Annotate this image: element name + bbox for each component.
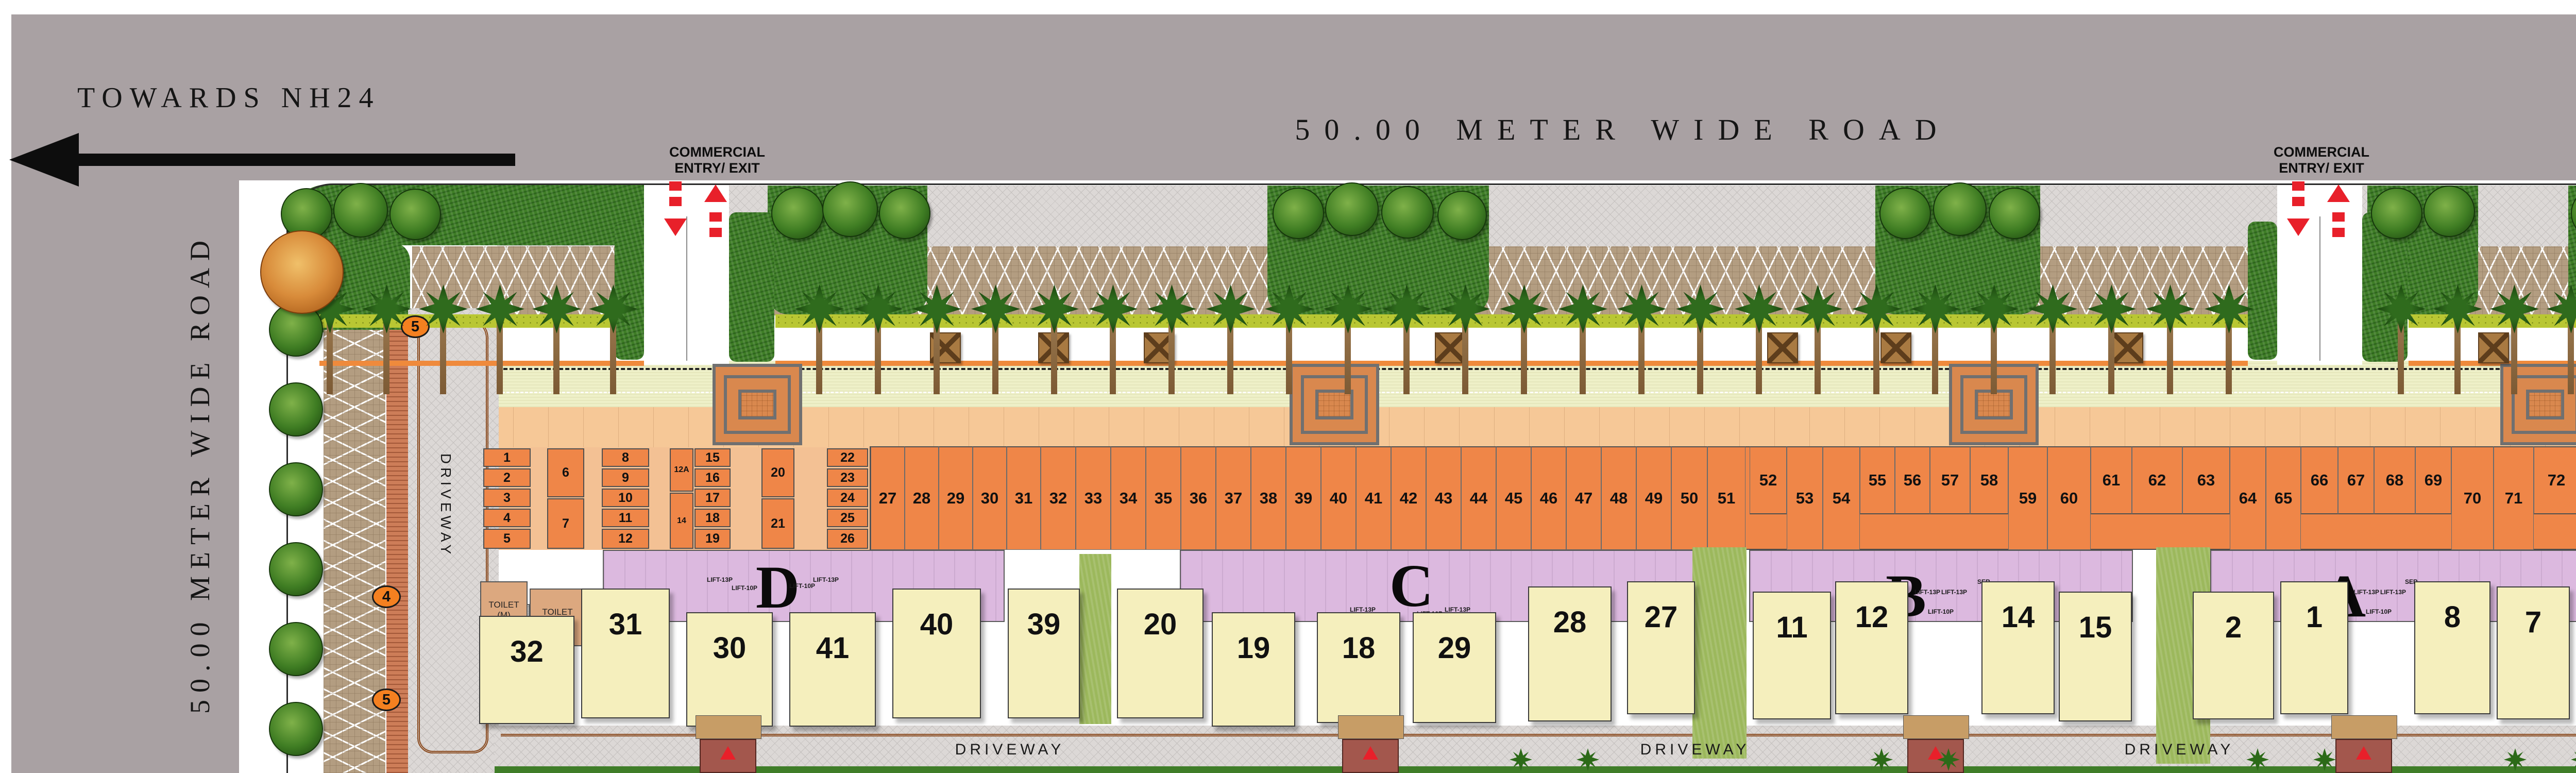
shop-unit: 30 [973,446,1007,550]
lift-label: LIFT-13P [2380,589,2406,596]
driveway-label: DRIVEWAY [2112,741,2246,759]
lift-label: LIFT-10P [1928,608,1954,615]
shop-unit: 55 [1860,446,1895,514]
commercial-entry-line2: ENTRY/ EXIT [650,160,784,176]
shop-unit: 16 [694,468,731,487]
tree-icon [269,622,323,676]
lift-label: LIFT-13P [1941,589,1967,596]
shop-unit: 58 [1970,446,2008,514]
residential-block: 7 [2497,586,2570,719]
palm-tree-icon [2568,309,2574,394]
shop-unit: 3 [483,489,531,507]
residential-block: 32 [479,616,574,724]
nh24-arrow-icon [9,133,79,187]
commercial-entry-label: COMMERCIAL ENTRY/ EXIT [650,144,784,176]
shop-unit: 47 [1566,446,1601,550]
entrance-gate [1342,739,1399,773]
palm-tree-icon [1638,309,1645,394]
shop-unit: 45 [1496,446,1531,550]
shop-unit: 40 [1321,446,1356,550]
shop-unit: 43 [1426,446,1461,550]
zone-number-badge: 5 [372,688,401,711]
residential-block: 19 [1212,612,1295,727]
paved-courtyard-square [1290,364,1379,445]
shop-unit: 6 [547,448,584,497]
shop-unit: 21 [761,498,794,549]
entrance-gate [1907,739,1964,773]
tree-icon [269,462,323,516]
shop-unit: 18 [694,509,731,527]
shop-unit: 53 [1787,446,1823,550]
tree-icon [1437,191,1487,240]
shop-unit: 8 [602,448,649,467]
tree-icon [269,542,323,596]
palm-tree-icon [2398,309,2404,394]
shop-unit: 67 [2338,446,2374,514]
shop-unit: 2 [483,468,531,487]
tree-icon [1879,188,1931,239]
tower-label: C [1387,552,1436,619]
residential-block: 39 [1008,589,1080,718]
shop-unit: 56 [1895,446,1930,514]
palm-tree-icon [1168,309,1175,394]
palm-tree-icon [1756,309,1762,394]
entry-direction-arrow-icon [709,181,722,239]
shop-unit: 46 [1531,446,1566,550]
residential-block: 28 [1528,586,1612,721]
shop-unit: 9 [602,468,649,487]
top-road-label: 50.00 METER WIDE ROAD [1236,112,2009,147]
site-plan-canvas: TOWARDS NH24 50.00 METER WIDE ROAD 50.00… [0,0,2576,773]
residential-block: 1 [2280,581,2348,714]
palm-tree-icon [1697,309,1703,394]
tree-icon [269,702,323,756]
palm-tree-icon [327,309,333,394]
palm-tree-icon [1932,309,1938,394]
palm-tree-icon [1403,309,1410,394]
shop-unit: 36 [1181,446,1216,550]
lift-label: LIFT-13P [2353,589,2379,596]
tree-icon [1381,186,1434,239]
tree-icon [1273,188,1324,239]
residential-block: 29 [1413,612,1496,723]
palm-tree-icon [1345,309,1351,394]
lift-label: LIFT-13P [1914,589,1940,596]
zone-number-badge: 4 [372,585,401,608]
shop-unit: 44 [1461,446,1496,550]
towards-nh24-label: TOWARDS NH24 [77,81,381,114]
shop-unit: 24 [827,489,868,507]
entry-direction-arrow-icon [2332,181,2345,239]
shop-unit: 69 [2415,446,2451,514]
planter-box [2478,332,2509,363]
palm-tree-icon [1110,309,1116,394]
tree-icon [269,382,323,436]
entrance-gate [2335,739,2392,773]
paved-courtyard-square [713,364,802,445]
shop-unit: 28 [905,446,939,550]
shop-unit: 26 [827,529,868,549]
residential-block: 14 [1981,581,2055,714]
nh24-arrow-shaft [49,154,515,166]
palm-tree-icon [875,309,881,394]
palm-tree-icon [1051,309,1057,394]
entry-hedge [615,222,644,360]
shop-unit: 17 [694,489,731,507]
shop-unit: 65 [2266,446,2301,550]
residential-block: 27 [1627,581,1695,714]
residential-block: 8 [2414,581,2490,714]
tree-icon [2371,188,2422,239]
shop-unit: 35 [1146,446,1181,550]
shop-unit: 48 [1601,446,1636,550]
entrance-gate [700,739,756,773]
planter-box [1767,332,1798,363]
shop-unit: 60 [2047,446,2091,550]
lift-label: LIFT-13P [813,576,839,583]
palm-tree-icon [934,309,940,394]
palm-tree-icon [816,309,822,394]
planter-box [1435,332,1466,363]
tree-icon [333,183,388,238]
zone-number-badge: 5 [401,315,430,338]
shop-unit: 4 [483,509,531,527]
lift-label: LIFT-13P [707,576,733,583]
residential-block: 31 [581,589,670,718]
shop-unit: 22 [827,448,868,467]
shop-unit: 51 [1707,446,1745,550]
shop-unit: 61 [2091,446,2132,514]
palm-tree-icon [2511,309,2517,394]
driveway-label: DRIVEWAY [1628,741,1762,759]
shop-unit: 19 [694,529,731,549]
shop-unit: 37 [1216,446,1251,550]
palm-tree-icon [2226,309,2232,394]
shop-unit: 72 [2534,446,2576,514]
shop-unit: 41 [1356,446,1391,550]
entry-direction-arrow-icon [669,181,682,239]
left-road-label: 50.00 METER WIDE ROAD [184,164,216,773]
palm-tree-icon [610,309,616,394]
shop-unit: 29 [939,446,973,550]
palm-tree-icon [2454,309,2461,394]
palm-tree-icon [1521,309,1527,394]
shop-unit: 15 [694,448,731,467]
palm-tree-icon [1227,309,1233,394]
shop-unit: 11 [602,509,649,527]
shop-unit: 34 [1111,446,1146,550]
palm-tree-icon [1580,309,1586,394]
shop-unit: 38 [1251,446,1286,550]
commercial-entry-line2: ENTRY/ EXIT [2255,160,2388,176]
palm-edging-strip [319,361,644,366]
driveway-label: DRIVEWAY [943,741,1077,759]
shop-unit: 20 [761,448,794,497]
shop-unit: 10 [602,489,649,507]
driveway-label: DRIVEWAY [437,439,454,573]
entry-direction-arrow-icon [2292,181,2305,239]
palm-tree-icon [2108,309,2114,394]
palm-tree-icon [1815,309,1821,394]
tree-icon [260,230,344,314]
tree-icon [389,189,441,240]
shop-unit: 54 [1823,446,1860,550]
shop-unit: 31 [1007,446,1041,550]
shop-unit: 7 [547,498,584,549]
palm-tree-icon [440,309,446,394]
residential-block: 18 [1317,612,1400,723]
tree-icon [1325,182,1379,236]
shop-unit: 57 [1930,446,1970,514]
planter-box [1880,332,1911,363]
palm-tree-icon [2049,309,2056,394]
palm-tree-icon [2167,309,2173,394]
palm-tree-icon [1873,309,1879,394]
shop-unit: 42 [1391,446,1426,550]
entry-hedge [2248,222,2277,360]
palm-tree-icon [992,309,998,394]
palm-tree-icon [553,309,560,394]
commercial-entry-line1: COMMERCIAL [650,144,784,160]
entry-hedge [729,212,774,362]
shop-unit: 27 [871,446,905,550]
shop-unit: 68 [2374,446,2415,514]
residential-block: 11 [1753,592,1831,719]
lift-label: LIFT-10P [2366,608,2392,615]
shop-unit: 32 [1041,446,1076,550]
residential-block: 30 [686,612,773,727]
tree-icon [879,188,930,239]
shop-unit: 59 [2008,446,2047,550]
shop-unit: 66 [2301,446,2338,514]
shop-unit: 25 [827,509,868,527]
green-strip [1692,547,1747,759]
tree-icon [1989,188,2040,239]
lift-label: LIFT-10P [732,584,757,592]
tree-icon [1933,182,1987,236]
commercial-entry-line1: COMMERCIAL [2255,144,2388,160]
shop-unit: 49 [1636,446,1671,550]
planter-box [2112,332,2143,363]
residential-block: 15 [2059,592,2132,721]
residential-block: 12 [1835,581,1908,714]
shop-unit: 12A [670,448,693,492]
shop-unit: 33 [1076,446,1111,550]
shop-unit: 14 [670,493,693,549]
shop-unit: 70 [2451,446,2494,550]
palm-tree-icon [383,309,389,394]
green-strip [1079,554,1111,724]
residential-block: 20 [1117,589,1204,718]
residential-block: 41 [789,612,876,727]
palm-tree-icon [1462,309,1468,394]
shop-unit: 23 [827,468,868,487]
tree-icon [822,181,878,237]
shop-unit: 62 [2132,446,2182,514]
shop-unit: 71 [2494,446,2534,550]
shop-unit: 52 [1750,446,1787,514]
shop-unit: 12 [602,529,649,549]
shop-unit: 1 [483,448,531,467]
commercial-entry-label: COMMERCIAL ENTRY/ EXIT [2255,144,2388,176]
tree-icon [2424,186,2475,237]
shop-unit: 64 [2230,446,2266,550]
shop-unit: 39 [1286,446,1321,550]
shrub-hedge-strip [2409,314,2576,328]
shop-unit: 5 [483,529,531,549]
residential-block: 2 [2193,592,2274,719]
shrub-hedge-strip [319,314,644,328]
shop-unit: 50 [1671,446,1707,550]
lift-label: LIFT-10P [789,582,815,590]
palm-tree-icon [497,309,503,394]
shop-unit: 63 [2182,446,2230,514]
residential-block: 40 [892,589,981,718]
palm-tree-icon [1286,309,1292,394]
tree-icon [771,187,824,240]
palm-tree-icon [1991,309,1997,394]
